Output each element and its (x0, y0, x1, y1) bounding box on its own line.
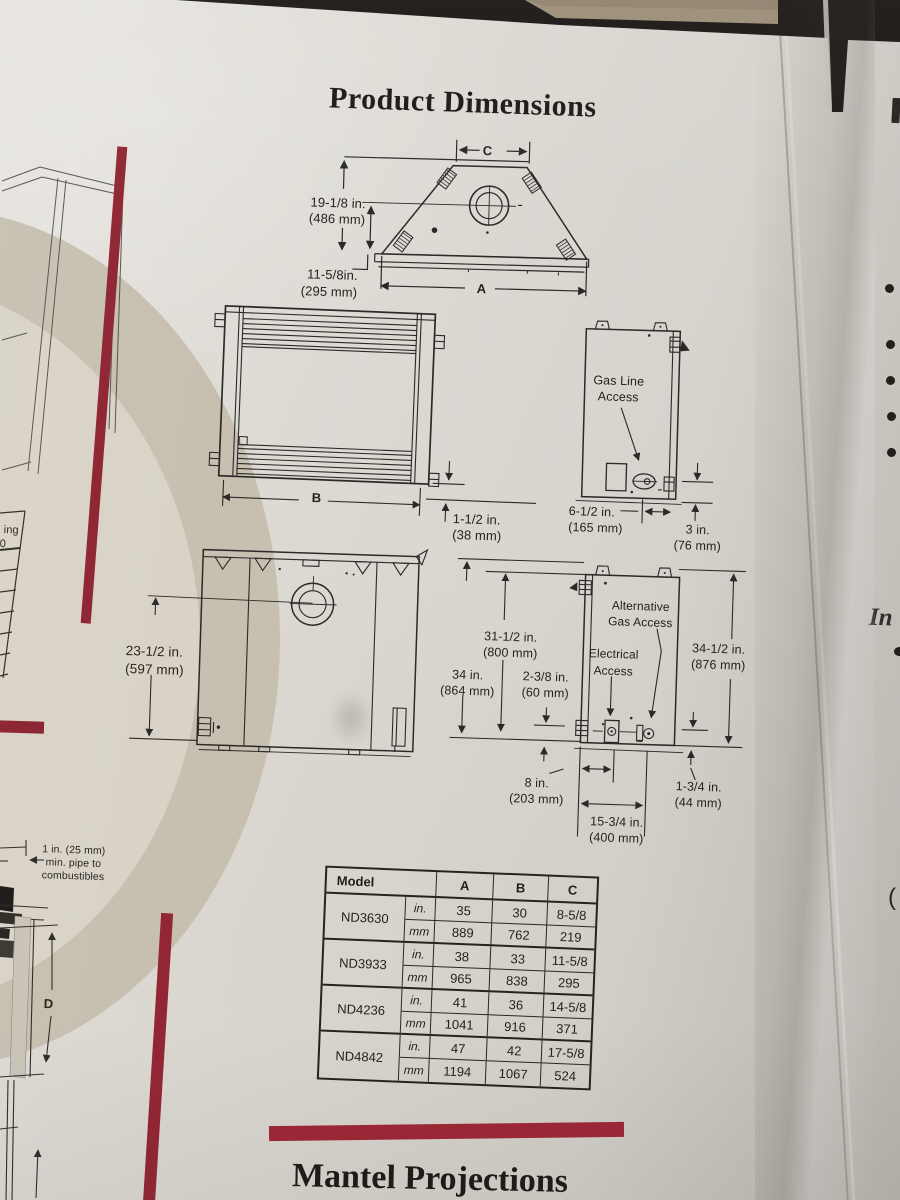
right-panel-bullet (886, 376, 895, 385)
dim-label-d: D (43, 996, 53, 1012)
cell-nd3630-mm-a: 889 (434, 921, 492, 946)
cell-nd3630-mm-c: 219 (546, 926, 595, 951)
dim-label-15-34: 15-3/4 in. (400 mm) (583, 813, 650, 847)
gas-line-access-line1: Gas Line (590, 372, 646, 390)
cell-nd4842-mm-b: 1067 (486, 1061, 542, 1086)
dim-23-12-in: 23-1/2 in. (125, 642, 184, 662)
front-view-diagram (207, 305, 543, 525)
dim-label-6-12: 6-1/2 in. (165 mm) (568, 503, 623, 537)
paper-smudge (328, 690, 374, 746)
unit-mm: mm (399, 1058, 430, 1082)
dim-1-34-mm: (44 mm) (671, 794, 725, 812)
dimensions-table: Model A B C ND3630 in. 35 30 8-5/8 mm 88… (317, 866, 599, 1091)
dim-label-3in: 3 in. (76 mm) (671, 521, 724, 555)
dim-label-23-12: 23-1/2 in. (597 mm) (125, 642, 185, 680)
dim-15-34-mm: (400 mm) (583, 829, 649, 847)
electrical-access-label: Electrical Access (584, 645, 643, 680)
dim-34in-mm: (864 mm) (437, 682, 497, 700)
cell-nd3630-in-c: 8-5/8 (547, 903, 596, 928)
table-header-c: C (548, 877, 597, 905)
dim-label-c: C (482, 143, 492, 159)
left-panel-partial-text2: 0 (0, 536, 6, 552)
unit-in: in. (405, 897, 436, 921)
dim-23-12-mm: (597 mm) (125, 660, 184, 680)
dim-label-1-34: 1-3/4 in. (44 mm) (671, 778, 726, 812)
dim-2-38-mm: (60 mm) (517, 684, 573, 702)
dim-label-19-18: 19-1/8 in. (486 mm) (295, 194, 366, 228)
table-model-nd4236: ND4236 (321, 986, 403, 1035)
dim-3in-mm: (76 mm) (671, 537, 723, 555)
right-panel-partial-paren: ( (888, 884, 896, 912)
dim-6-12-mm: (165 mm) (568, 519, 623, 537)
dim-3in-in: 3 in. (671, 521, 723, 539)
alternative-gas-access-label: Alternative Gas Access (603, 598, 678, 631)
dim-1-34-in: 1-3/4 in. (671, 778, 725, 796)
dim-19-18-mm: (486 mm) (295, 210, 365, 228)
dim-34-12-mm: (876 mm) (687, 656, 749, 674)
dim-11-58-mm: (295 mm) (295, 282, 358, 301)
right-panel-bullet (885, 284, 894, 293)
cell-nd3933-in-c: 11-5/8 (545, 949, 594, 974)
dim-label-1-12: 1-1/2 in. (38 mm) (452, 511, 502, 545)
table-model-nd3630: ND3630 (324, 894, 406, 943)
brochure-page-photo: Product Dimensions Mantel Projections C … (0, 0, 900, 1200)
alt-gas-line1: Alternative (604, 598, 678, 616)
alt-gas-line2: Gas Access (603, 613, 677, 631)
gas-side-view-diagram (575, 321, 718, 526)
cell-nd4236-in-b: 36 (489, 992, 545, 1017)
dim-34in-in: 34 in. (437, 666, 497, 684)
pipe-note-line3: combustibles (35, 869, 111, 884)
cell-nd4236-in-a: 41 (432, 990, 490, 1015)
top-view-diagram (341, 137, 592, 296)
dim-label-b: B (311, 490, 321, 506)
page-fold-crease (778, 0, 854, 1200)
table-model-nd3933: ND3933 (323, 940, 405, 989)
cell-nd3933-mm-a: 965 (432, 967, 490, 992)
unit-mm: mm (403, 966, 434, 990)
dim-label-11-58: 11-5/8in. (295 mm) (295, 265, 358, 301)
dim-label-31-12: 31-1/2 in. (800 mm) (481, 628, 540, 662)
right-panel-bullet-clipped (894, 647, 900, 656)
cell-nd4236-mm-b: 916 (488, 1015, 544, 1040)
cell-nd4842-in-a: 47 (430, 1036, 488, 1061)
partial-letter-fragment (891, 98, 900, 123)
unit-in: in. (402, 989, 433, 1013)
dim-label-2-38: 2-3/8 in. (60 mm) (517, 668, 574, 702)
left-panel-pipe-diagram (0, 840, 58, 1200)
electrical-line2: Access (584, 661, 642, 679)
unit-in: in. (400, 1035, 431, 1059)
cell-nd4842-in-c: 17-5/8 (542, 1040, 591, 1065)
cell-nd3630-in-a: 35 (435, 898, 493, 923)
cell-nd4842-mm-c: 524 (541, 1063, 590, 1088)
dim-label-8in: 8 in. (203 mm) (503, 774, 570, 808)
gas-line-access-line2: Access (590, 388, 646, 406)
right-panel-bullet (886, 340, 895, 349)
gas-line-access-label: Gas Line Access (590, 372, 647, 406)
pipe-clearance-note: 1 in. (25 mm) min. pipe to combustibles (35, 843, 112, 884)
cell-nd3933-in-b: 33 (490, 946, 546, 971)
electrical-line1: Electrical (584, 645, 642, 663)
right-panel-bullet (887, 448, 896, 457)
cell-nd3933-mm-c: 295 (544, 971, 593, 996)
unit-mm: mm (401, 1012, 432, 1036)
dim-label-34in: 34 in. (864 mm) (437, 666, 498, 700)
cell-nd3933-in-a: 38 (433, 944, 491, 969)
cell-nd4842-in-b: 42 (487, 1038, 543, 1063)
cell-nd4842-mm-a: 1194 (429, 1059, 487, 1084)
dim-34-12-in: 34-1/2 in. (687, 640, 749, 658)
top-dark-band (0, 0, 900, 130)
cell-nd4236-in-c: 14-5/8 (543, 994, 592, 1019)
right-panel-bullet (887, 412, 896, 421)
dim-label-a: A (476, 281, 486, 297)
dim-6-12-in: 6-1/2 in. (568, 503, 623, 521)
cell-nd3933-mm-b: 838 (489, 969, 545, 994)
table-model-nd4842: ND4842 (319, 1032, 401, 1081)
table-header-a: A (436, 872, 494, 900)
dim-11-58-in: 11-5/8in. (295, 265, 358, 284)
dim-2-38-in: 2-3/8 in. (517, 668, 573, 686)
right-panel-partial-text: In (869, 604, 893, 633)
red-accent-bar-left-stub (0, 720, 44, 734)
table-header-b: B (493, 874, 549, 902)
dim-1-12-mm: (38 mm) (452, 527, 502, 545)
dim-31-12-mm: (800 mm) (481, 644, 539, 662)
footer-section-title: Mantel Projections (292, 1157, 569, 1200)
unit-mm: mm (404, 920, 435, 944)
dim-8in-mm: (203 mm) (503, 790, 569, 808)
cell-nd3630-in-b: 30 (492, 900, 548, 925)
cell-nd4236-mm-a: 1041 (431, 1013, 489, 1038)
dim-1-12-in: 1-1/2 in. (452, 511, 502, 529)
dim-label-34-12: 34-1/2 in. (876 mm) (687, 640, 750, 674)
unit-in: in. (403, 943, 434, 967)
dim-31-12-in: 31-1/2 in. (481, 628, 539, 646)
cell-nd4236-mm-c: 371 (543, 1017, 592, 1042)
cell-nd3630-mm-b: 762 (491, 923, 547, 948)
